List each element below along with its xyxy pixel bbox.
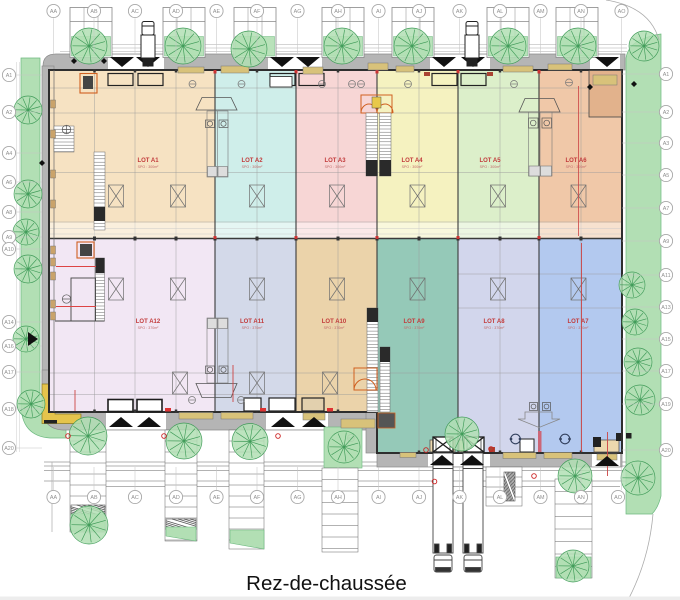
svg-text:LOT A5: LOT A5	[479, 158, 501, 164]
svg-text:SPO : 300m²: SPO : 300m²	[402, 165, 424, 169]
svg-text:A17: A17	[661, 369, 671, 375]
svg-text:AA: AA	[50, 9, 58, 15]
svg-text:LOT A11: LOT A11	[240, 319, 265, 325]
svg-text:SPO : 370m²: SPO : 370m²	[138, 326, 160, 330]
svg-text:AK: AK	[456, 495, 464, 501]
svg-text:AI: AI	[376, 495, 381, 501]
svg-text:AE: AE	[213, 495, 221, 501]
svg-text:SPO : 370m²: SPO : 370m²	[242, 326, 264, 330]
svg-text:A18: A18	[4, 407, 14, 413]
svg-text:SPO : 300m²: SPO : 300m²	[325, 165, 347, 169]
svg-text:AM: AM	[536, 495, 545, 501]
svg-text:AG: AG	[294, 9, 302, 15]
svg-text:A13: A13	[661, 305, 671, 311]
svg-text:LOT A1: LOT A1	[137, 158, 159, 164]
svg-text:A20: A20	[661, 448, 671, 454]
svg-text:A2: A2	[663, 110, 670, 116]
svg-text:A5: A5	[663, 173, 670, 179]
svg-text:SPO : 300m²: SPO : 300m²	[242, 165, 264, 169]
svg-text:AB: AB	[90, 495, 98, 501]
svg-text:A20: A20	[4, 446, 14, 452]
svg-text:A14: A14	[4, 320, 14, 326]
svg-text:AC: AC	[131, 495, 139, 501]
svg-text:LOT A8: LOT A8	[483, 319, 505, 325]
svg-text:SPO : 370m²: SPO : 370m²	[568, 326, 590, 330]
svg-text:Rez-de-chaussée: Rez-de-chaussée	[246, 572, 407, 595]
svg-text:A10: A10	[4, 247, 14, 253]
svg-text:AD: AD	[172, 9, 180, 15]
svg-text:LOT A4: LOT A4	[401, 158, 423, 164]
svg-text:LOT A7: LOT A7	[567, 319, 589, 325]
svg-text:AL: AL	[497, 495, 504, 501]
svg-text:A4: A4	[6, 151, 13, 157]
svg-text:AL: AL	[497, 9, 504, 15]
svg-text:A11: A11	[661, 273, 670, 279]
svg-text:A2: A2	[6, 110, 13, 116]
svg-text:LOT A6: LOT A6	[565, 158, 587, 164]
svg-text:A6: A6	[6, 180, 13, 186]
svg-text:AA: AA	[50, 495, 58, 501]
svg-text:LOT A10: LOT A10	[322, 319, 347, 325]
svg-text:AF: AF	[254, 9, 262, 15]
svg-text:AD: AD	[172, 495, 180, 501]
svg-text:A9: A9	[663, 239, 670, 245]
svg-text:AN: AN	[577, 9, 585, 15]
svg-text:A3: A3	[663, 141, 670, 147]
svg-text:SPO : 300m²: SPO : 300m²	[138, 165, 160, 169]
svg-text:A8: A8	[6, 210, 13, 216]
svg-text:A16: A16	[4, 344, 14, 350]
svg-text:LOT A3: LOT A3	[324, 158, 346, 164]
svg-text:AH: AH	[334, 9, 342, 15]
svg-text:AH: AH	[334, 495, 342, 501]
svg-text:LOT A2: LOT A2	[241, 158, 263, 164]
svg-text:A19: A19	[661, 402, 671, 408]
svg-text:A15: A15	[661, 337, 671, 343]
svg-text:AO: AO	[614, 495, 622, 501]
svg-text:A17: A17	[4, 370, 14, 376]
svg-text:AJ: AJ	[416, 495, 423, 501]
svg-text:AK: AK	[456, 9, 464, 15]
svg-text:SPO : 370m²: SPO : 370m²	[484, 326, 506, 330]
svg-text:SPO : 300m²: SPO : 300m²	[480, 165, 502, 169]
svg-text:A9: A9	[6, 235, 13, 241]
svg-text:A1: A1	[663, 72, 670, 78]
svg-text:AG: AG	[294, 495, 302, 501]
svg-text:LOT A12: LOT A12	[136, 319, 161, 325]
svg-text:AJ: AJ	[416, 9, 423, 15]
svg-text:AO: AO	[618, 9, 626, 15]
svg-text:A7: A7	[663, 206, 670, 212]
svg-text:AF: AF	[254, 495, 262, 501]
svg-text:SPO : 370m²: SPO : 370m²	[324, 326, 346, 330]
svg-text:SPO : 370m²: SPO : 370m²	[404, 326, 426, 330]
svg-text:AB: AB	[90, 9, 98, 15]
svg-text:AE: AE	[213, 9, 221, 15]
svg-text:SPO : 300m²: SPO : 300m²	[566, 165, 588, 169]
svg-text:AN: AN	[577, 495, 585, 501]
svg-text:A1: A1	[6, 73, 13, 79]
svg-text:AC: AC	[131, 9, 139, 15]
svg-text:AI: AI	[376, 9, 381, 15]
svg-text:LOT A9: LOT A9	[403, 319, 425, 325]
svg-text:AM: AM	[536, 9, 545, 15]
